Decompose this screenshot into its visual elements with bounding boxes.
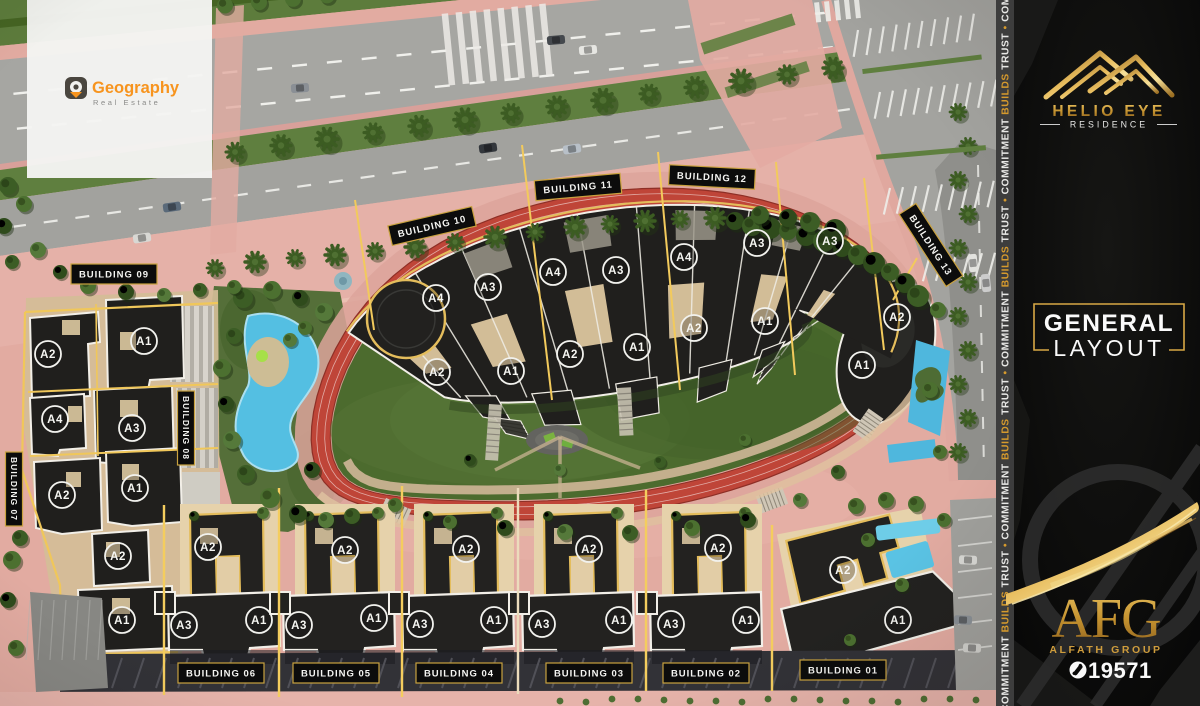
svg-text:ALFATH GROUP: ALFATH GROUP xyxy=(1049,644,1162,656)
svg-text:LAYOUT: LAYOUT xyxy=(1053,335,1164,361)
svg-text:GENERAL: GENERAL xyxy=(1044,310,1174,337)
svg-text:HELIO EYE: HELIO EYE xyxy=(1052,103,1165,120)
svg-text:19571: 19571 xyxy=(1088,658,1152,683)
svg-text:AFG: AFG xyxy=(1051,588,1160,650)
svg-text:RESIDENCE: RESIDENCE xyxy=(1070,120,1148,130)
